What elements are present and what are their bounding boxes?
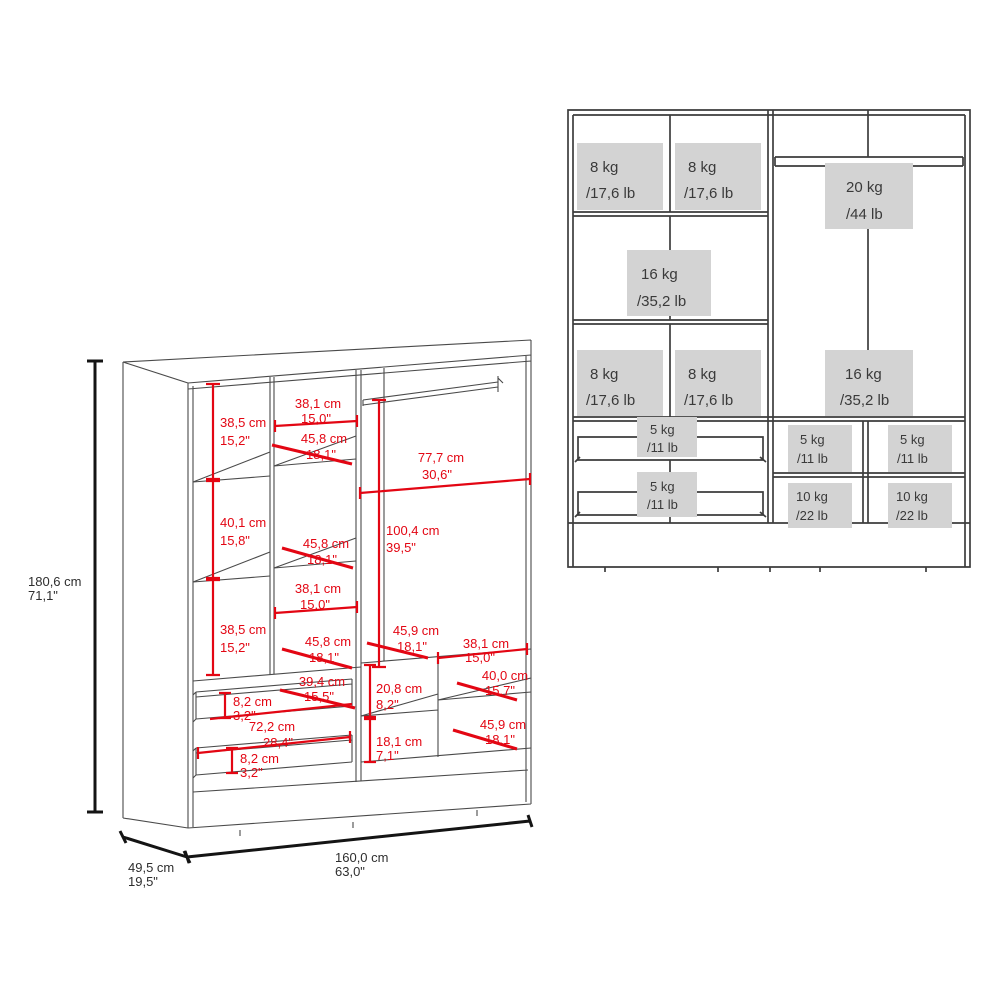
overall-width-in: 63,0" — [335, 864, 365, 879]
capacity-drawer2-lb: /11 lb — [647, 497, 678, 512]
spec-sheet-page: 38,5 cm 15,2" 38,1 cm 15,0" 45,8 cm 18,1… — [0, 0, 1000, 1000]
dim-lower-shelf-width-in: 15,0" — [300, 597, 330, 612]
capacity-drawer1-kg: 5 kg — [650, 422, 675, 437]
dim-right-compartment-height-cm: 20,8 cm — [376, 681, 422, 696]
dim-right-bottom-shelf-depth-in: 18,1" — [485, 732, 515, 747]
capacity-label-hanging-rail: 20 kg /44 lb — [825, 163, 913, 229]
capacity-drawer2-kg: 5 kg — [650, 479, 675, 494]
capacity-right-section-kg: 16 kg — [845, 366, 882, 383]
dim-right-shelf-depth-in: 18,1" — [397, 639, 427, 654]
capacity-label-drawer-1: 5 kg /11 lb — [637, 417, 697, 457]
capacity-right-shelf-right-lb: /11 lb — [897, 451, 928, 466]
dim-hanging-section-width-in: 30,6" — [422, 467, 452, 482]
capacity-right-shelf-right-kg: 5 kg — [900, 432, 925, 447]
overall-height-cm: 180,6 cm — [28, 574, 81, 589]
dim-drawer-depth-cm: 39,4 cm — [299, 674, 345, 689]
capacity-label-right-bottom-right: 10 kg /22 lb — [888, 483, 952, 528]
dim-hanging-section-width-cm: 77,7 cm — [418, 450, 464, 465]
dim-upper-shelf-depth-cm: 45,8 cm — [301, 431, 347, 446]
dim-upper-shelf-depth-in: 18,1" — [306, 447, 336, 462]
dim-drawer-front-height-bottom-in: 3,2" — [240, 765, 263, 780]
dim-left-upper-shelf-height-in: 15,2" — [220, 433, 250, 448]
capacity-middle-lb: /35,2 lb — [637, 293, 686, 310]
capacity-right-bottom-right-lb: /22 lb — [896, 508, 928, 523]
dim-drawer-width-in: 28,4" — [263, 735, 293, 750]
right-capacity-diagram-svg: 8 kg /17,6 lb 8 kg /17,6 lb 20 kg /44 lb… — [560, 95, 1000, 585]
capacity-label-middle-shelf: 16 kg /35,2 lb — [627, 250, 711, 316]
dim-middle-shelf-depth-in: 18,1" — [307, 552, 337, 567]
capacity-label-right-shelf-right: 5 kg /11 lb — [888, 425, 952, 472]
dim-right-bottom-compartment-height-in: 7,1" — [376, 748, 399, 763]
capacity-lower-left-lb: /17,6 lb — [586, 392, 635, 409]
dim-hanging-section-height-cm: 100,4 cm — [386, 523, 439, 538]
overall-width-cm: 160,0 cm — [335, 850, 388, 865]
dim-right-shelf-width-in: 15,0" — [465, 650, 495, 665]
dim-lower-shelf-width-cm: 38,1 cm — [295, 581, 341, 596]
dim-right-bottom-compartment-height-cm: 18,1 cm — [376, 734, 422, 749]
capacity-lower-left-kg: 8 kg — [590, 366, 618, 383]
capacity-right-bottom-left-kg: 10 kg — [796, 489, 828, 504]
capacity-drawer1-lb: /11 lb — [647, 440, 678, 455]
dim-hanging-section-height-in: 39,5" — [386, 540, 416, 555]
capacity-top-middle-kg: 8 kg — [688, 159, 716, 176]
dim-drawer-width-cm: 72,2 cm — [249, 719, 295, 734]
capacity-right-section-lb: /35,2 lb — [840, 392, 889, 409]
capacity-label-right-bottom-left: 10 kg /22 lb — [788, 483, 852, 528]
dim-middle-shelf-depth-cm: 45,8 cm — [303, 536, 349, 551]
dim-left-upper-shelf-height-cm: 38,5 cm — [220, 415, 266, 430]
dim-lower-shelf-depth-in: 18,1" — [309, 650, 339, 665]
dim-drawer-depth-in: 15,5" — [304, 689, 334, 704]
dim-right-bottom-shelf-depth-cm: 45,9 cm — [480, 717, 526, 732]
capacity-middle-kg: 16 kg — [641, 266, 678, 283]
left-dimension-diagram-svg: 38,5 cm 15,2" 38,1 cm 15,0" 45,8 cm 18,1… — [0, 330, 560, 910]
capacity-top-left-lb: /17,6 lb — [586, 185, 635, 202]
capacity-label-top-left-shelf: 8 kg /17,6 lb — [577, 143, 663, 210]
dim-lower-shelf-depth-cm: 45,8 cm — [305, 634, 351, 649]
capacity-label-top-middle-shelf: 8 kg /17,6 lb — [675, 143, 761, 210]
capacity-right-bottom-left-lb: /22 lb — [796, 508, 828, 523]
dim-right-compartment-height-in: 8,2" — [376, 697, 399, 712]
dim-right-shelf-depth-cm: 45,9 cm — [393, 623, 439, 638]
capacity-label-lower-middle-shelf: 8 kg /17,6 lb — [675, 350, 761, 416]
dim-left-middle-shelf-height-in: 15,8" — [220, 533, 250, 548]
capacity-rail-kg: 20 kg — [846, 179, 883, 196]
capacity-top-middle-lb: /17,6 lb — [684, 185, 733, 202]
dim-left-middle-shelf-height-cm: 40,1 cm — [220, 515, 266, 530]
overall-depth-in: 19,5" — [128, 874, 158, 889]
dim-drawer-front-height-bottom-cm: 8,2 cm — [240, 751, 279, 766]
dim-left-lower-shelf-height-in: 15,2" — [220, 640, 250, 655]
overall-height-in: 71,1" — [28, 588, 58, 603]
dim-right-shelf-width-cm: 38,1 cm — [463, 636, 509, 651]
capacity-label-drawer-2: 5 kg /11 lb — [637, 472, 697, 517]
dim-right-lower-shelf-width-in: 15,7" — [485, 683, 515, 698]
capacity-lower-middle-lb: /17,6 lb — [684, 392, 733, 409]
dim-drawer-front-height-top-cm: 8,2 cm — [233, 694, 272, 709]
dim-left-lower-shelf-height-cm: 38,5 cm — [220, 622, 266, 637]
capacity-label-right-shelf-left: 5 kg /11 lb — [788, 425, 852, 472]
capacity-rail-lb: /44 lb — [846, 206, 883, 223]
capacity-right-shelf-left-lb: /11 lb — [797, 451, 828, 466]
overall-depth-cm: 49,5 cm — [128, 860, 174, 875]
dim-upper-shelf-width-in: 15,0" — [301, 411, 331, 426]
capacity-top-left-kg: 8 kg — [590, 159, 618, 176]
capacity-right-shelf-left-kg: 5 kg — [800, 432, 825, 447]
capacity-lower-middle-kg: 8 kg — [688, 366, 716, 383]
capacity-label-right-section: 16 kg /35,2 lb — [825, 350, 913, 416]
capacity-right-bottom-right-kg: 10 kg — [896, 489, 928, 504]
dim-upper-shelf-width-cm: 38,1 cm — [295, 396, 341, 411]
dim-right-lower-shelf-width-cm: 40,0 cm — [482, 668, 528, 683]
capacity-label-lower-left-shelf: 8 kg /17,6 lb — [577, 350, 663, 416]
